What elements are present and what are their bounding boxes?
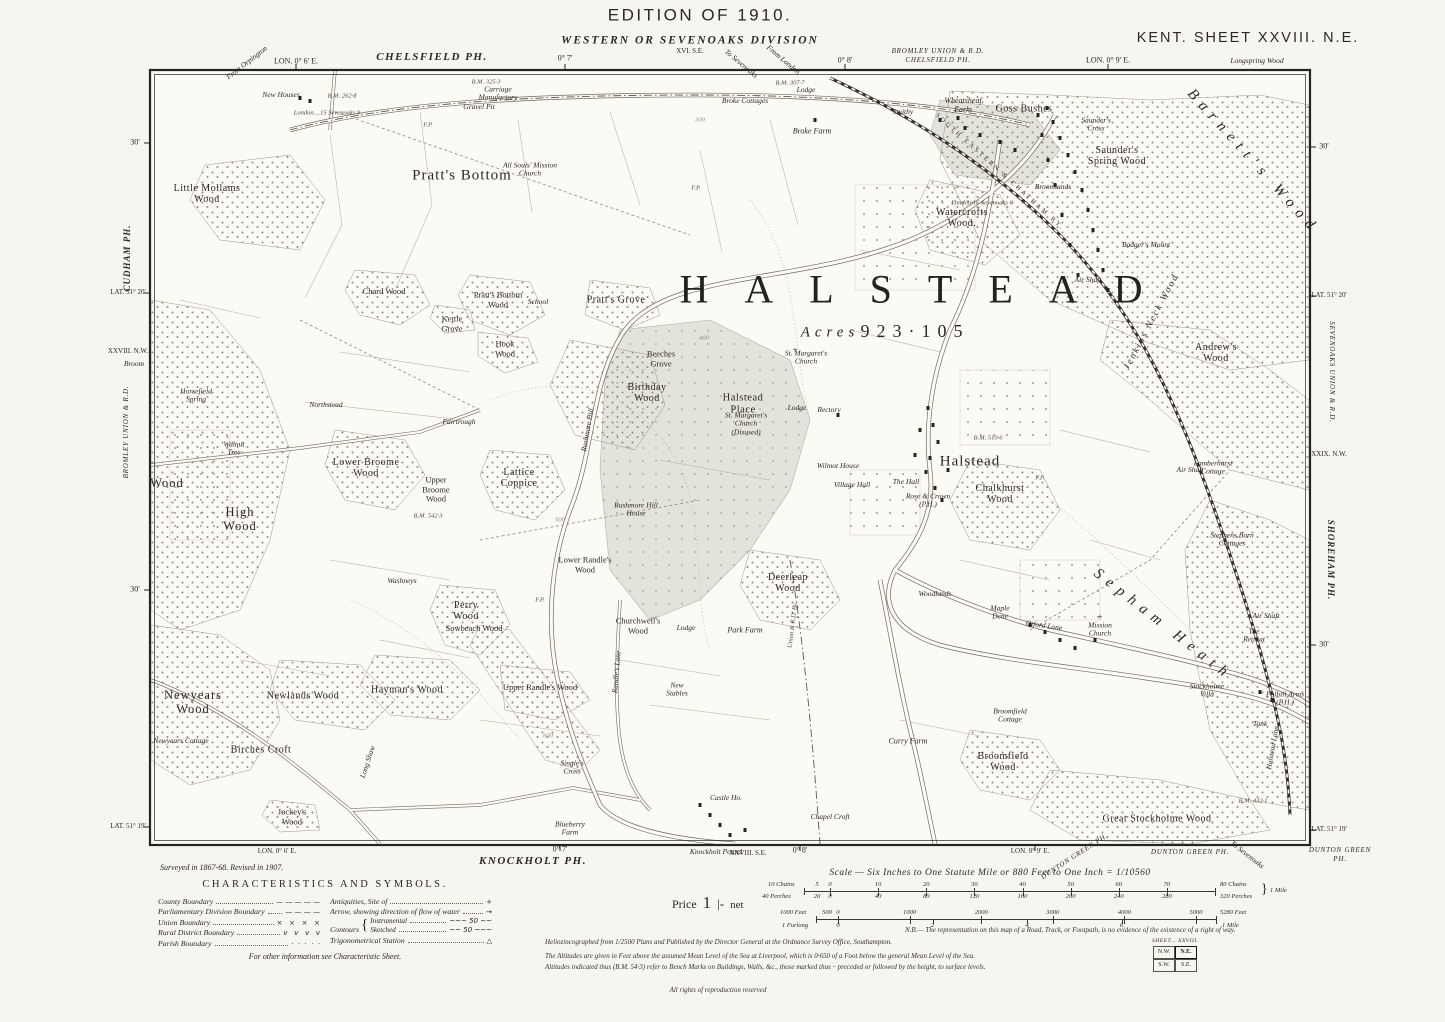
note-altitudes-2: Altitudes indicated thus (B.M. 54·3) ref… bbox=[545, 963, 986, 971]
dotted-leader bbox=[215, 945, 289, 946]
os-map-sheet: From OrpingtonLON. 0° 6' E.CHELSFIELD PH… bbox=[0, 0, 1445, 1022]
dotted-leader bbox=[390, 903, 483, 904]
price-value: 1 bbox=[703, 893, 712, 913]
dotted-leader bbox=[237, 934, 280, 935]
legend-symbol-parliamentary-division-boundary: — — — — bbox=[285, 908, 320, 916]
legend-label: Trigonometrical Station bbox=[330, 936, 405, 945]
price-label: Price 1 |- net bbox=[672, 893, 744, 913]
legend-symbol-county-boundary: — — — — — bbox=[276, 898, 320, 906]
legend-row-union-boundary: Union Boundary× × × × bbox=[158, 916, 320, 927]
dotted-leader bbox=[216, 903, 273, 904]
legend-panel: CHARACTERISTICS AND SYMBOLS. County Boun… bbox=[158, 879, 492, 961]
legend-row-antiquities-site-of: Antiquities, Site of+ bbox=[330, 895, 492, 906]
scale-statement: Scale — Six Inches to One Statute Mile o… bbox=[829, 868, 1150, 878]
sheet-index-title: SHEET... XXVIII. bbox=[1152, 938, 1198, 944]
legend-footnote: For other information see Characteristic… bbox=[158, 952, 492, 961]
note-rights: All rights of reproduction reserved bbox=[670, 986, 767, 994]
legend-row-rural-district-boundary: Rural District Boundaryv v v v bbox=[158, 927, 320, 938]
legend-row-parliamentary-division-boundary: Parliamentary Division Boundary— — — — bbox=[158, 906, 320, 917]
legend-label: Rural District Boundary bbox=[158, 928, 234, 937]
legend-symbol-antiquities-site-of: + bbox=[486, 898, 492, 906]
legend-row-arrow-showing-direction-of-flow-of-water: Arrow, showing direction of flow of wate… bbox=[330, 906, 492, 917]
brace-glyph: { bbox=[361, 917, 368, 934]
index-cell-n-e: N.E. bbox=[1175, 946, 1197, 959]
legend-symbol-sketched: ~~ 50 ~~~ bbox=[449, 926, 492, 934]
index-cell-s-w: S.W. bbox=[1153, 959, 1175, 972]
legend-label: Contours bbox=[330, 925, 359, 934]
price-suffix: net bbox=[730, 899, 743, 911]
sheet-index-diagram: SHEET... XXVIII. N.W.N.E.S.W.S.E. bbox=[1152, 938, 1198, 972]
dotted-leader bbox=[213, 924, 273, 925]
legend-row-instrumental: Instrumental~~~ 50 ~~ bbox=[370, 916, 492, 925]
dotted-leader bbox=[408, 942, 484, 943]
legend-label: County Boundary bbox=[158, 897, 213, 906]
legend-symbol-arrow-showing-direction-of-flow-of-water: → bbox=[486, 908, 492, 916]
legend-row-trigonometrical-station: Trigonometrical Station△ bbox=[330, 934, 492, 945]
dotted-leader bbox=[268, 913, 283, 914]
legend-row-county-boundary: County Boundary— — — — — bbox=[158, 895, 320, 906]
price-separator: |- bbox=[717, 896, 724, 912]
legend-symbol-instrumental: ~~~ 50 ~~ bbox=[449, 917, 492, 925]
legend-label: Arrow, showing direction of flow of wate… bbox=[330, 907, 460, 916]
legend-label: Antiquities, Site of bbox=[330, 897, 387, 906]
legend-symbol-union-boundary: × × × × bbox=[277, 919, 321, 927]
legend-right-column: Antiquities, Site of+Arrow, showing dire… bbox=[330, 895, 492, 948]
legend-row-parish-boundary: Parish Boundary· · · · · bbox=[158, 937, 320, 948]
legend-label: Instrumental bbox=[370, 917, 407, 925]
dotted-leader bbox=[463, 913, 483, 914]
legend-label: Parliamentary Division Boundary bbox=[158, 907, 265, 916]
price-prefix: Price bbox=[672, 897, 697, 912]
sheet-index-grid: N.W.N.E.S.W.S.E. bbox=[1152, 946, 1198, 972]
legend-left-column: County Boundary— — — — —Parliamentary Di… bbox=[158, 895, 320, 948]
note-right-of-way: N.B.— The representation on this map of … bbox=[905, 926, 1235, 934]
legend-label: Union Boundary bbox=[158, 918, 210, 927]
legend-row-sketched: Sketched~~ 50 ~~~ bbox=[370, 925, 492, 934]
index-cell-n-w: N.W. bbox=[1153, 946, 1175, 959]
legend-row-contours: Contours{Instrumental~~~ 50 ~~Sketched~~… bbox=[330, 916, 492, 934]
survey-note: Surveyed in 1867-68. Revised in 1907. bbox=[160, 863, 283, 872]
legend-title: CHARACTERISTICS AND SYMBOLS. bbox=[158, 879, 492, 890]
dotted-leader bbox=[410, 922, 446, 923]
legend-label: Sketched bbox=[370, 926, 396, 934]
dotted-leader bbox=[399, 931, 447, 932]
legend-symbol-trigonometrical-station: △ bbox=[487, 937, 492, 945]
index-cell-s-e: S.E. bbox=[1175, 959, 1197, 972]
legend-label: Parish Boundary bbox=[158, 939, 212, 948]
legend-symbol-parish-boundary: · · · · · bbox=[291, 940, 320, 948]
note-altitudes-1: The Altitudes are given in Feet above th… bbox=[545, 952, 975, 960]
legend-symbol-rural-district-boundary: v v v v bbox=[283, 929, 320, 937]
note-publication: Heliozincographed from 1/2500 Plans and … bbox=[545, 938, 892, 946]
